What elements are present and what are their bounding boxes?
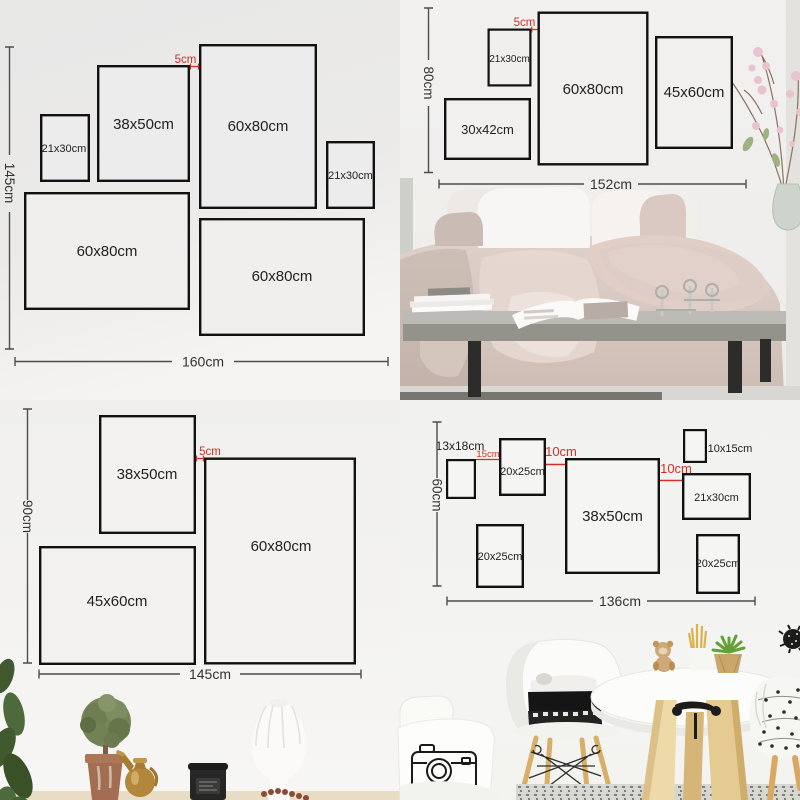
svg-text:10cm: 10cm — [660, 461, 692, 476]
svg-text:45x60cm: 45x60cm — [664, 84, 725, 101]
svg-text:145cm: 145cm — [189, 666, 231, 682]
svg-text:45x60cm: 45x60cm — [87, 593, 148, 610]
svg-text:21x30cm: 21x30cm — [328, 170, 373, 182]
svg-text:30x42cm: 30x42cm — [461, 122, 514, 137]
svg-text:38x50cm: 38x50cm — [582, 508, 643, 525]
svg-text:38x50cm: 38x50cm — [113, 116, 174, 133]
svg-text:60x80cm: 60x80cm — [252, 268, 313, 285]
svg-text:20x25cm: 20x25cm — [696, 558, 741, 570]
svg-text:5cm: 5cm — [199, 446, 221, 458]
svg-text:20x25cm: 20x25cm — [478, 551, 523, 563]
svg-text:90cm: 90cm — [20, 500, 35, 533]
svg-text:21x30cm: 21x30cm — [489, 54, 530, 65]
svg-text:60cm: 60cm — [429, 478, 444, 511]
svg-text:15cm: 15cm — [476, 449, 499, 460]
svg-text:80cm: 80cm — [421, 66, 436, 99]
svg-text:5cm: 5cm — [175, 54, 197, 66]
svg-text:21x30cm: 21x30cm — [42, 143, 87, 155]
svg-text:160cm: 160cm — [182, 354, 224, 370]
svg-text:145cm: 145cm — [2, 163, 17, 204]
svg-text:60x80cm: 60x80cm — [228, 118, 289, 135]
svg-text:60x80cm: 60x80cm — [251, 538, 312, 555]
svg-text:60x80cm: 60x80cm — [77, 243, 138, 260]
svg-text:60x80cm: 60x80cm — [563, 81, 624, 98]
svg-text:38x50cm: 38x50cm — [117, 466, 178, 483]
svg-text:21x30cm: 21x30cm — [694, 492, 739, 504]
svg-text:10cm: 10cm — [545, 444, 577, 459]
svg-text:10x15cm: 10x15cm — [708, 443, 753, 455]
svg-text:152cm: 152cm — [590, 176, 632, 192]
svg-text:136cm: 136cm — [599, 593, 641, 609]
svg-text:20x25cm: 20x25cm — [500, 466, 545, 478]
